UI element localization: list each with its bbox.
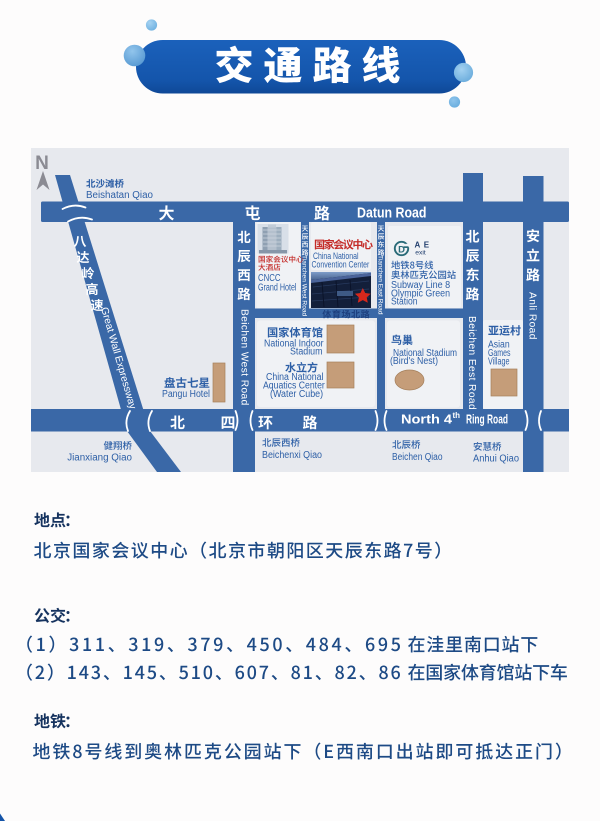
svg-text:Datun Road: Datun Road xyxy=(357,206,427,222)
svg-text:(Water Cube): (Water Cube) xyxy=(270,389,323,400)
svg-text:Anhui Qiao: Anhui Qiao xyxy=(473,454,520,465)
svg-text:Stadium: Stadium xyxy=(290,347,323,358)
svg-text:N: N xyxy=(35,153,49,174)
svg-text:th: th xyxy=(453,411,461,420)
svg-text:Station: Station xyxy=(391,297,418,308)
svg-text:A E: A E xyxy=(415,241,430,250)
svg-text:Tianchen West Road: Tianchen West Road xyxy=(301,255,308,317)
svg-text:Grand Hotel: Grand Hotel xyxy=(258,283,297,294)
svg-text:Ring Road: Ring Road xyxy=(466,413,508,427)
svg-text:(Bird's Nest): (Bird's Nest) xyxy=(390,356,438,367)
svg-text:Beichen Eest Road: Beichen Eest Road xyxy=(466,316,477,410)
svg-text:Beichen West Road: Beichen West Road xyxy=(239,309,250,406)
svg-text:Convention Center: Convention Center xyxy=(312,260,370,271)
svg-text:Beichen Qiao: Beichen Qiao xyxy=(392,452,443,463)
svg-text:Jianxiang Qiao: Jianxiang Qiao xyxy=(67,453,132,464)
svg-text:North 4: North 4 xyxy=(401,413,452,427)
svg-text:Beishatan Qiao: Beishatan Qiao xyxy=(86,190,154,201)
svg-text:Anli Road: Anli Road xyxy=(527,292,538,340)
svg-text:Beichenxi Qiao: Beichenxi Qiao xyxy=(262,450,322,461)
svg-text:D: D xyxy=(398,244,405,255)
svg-text:Tianchen East Road: Tianchen East Road xyxy=(377,255,384,315)
svg-text:Village: Village xyxy=(488,357,510,368)
svg-text:Pangu Hotel: Pangu Hotel xyxy=(162,389,210,400)
svg-text:exit: exit xyxy=(415,249,426,256)
